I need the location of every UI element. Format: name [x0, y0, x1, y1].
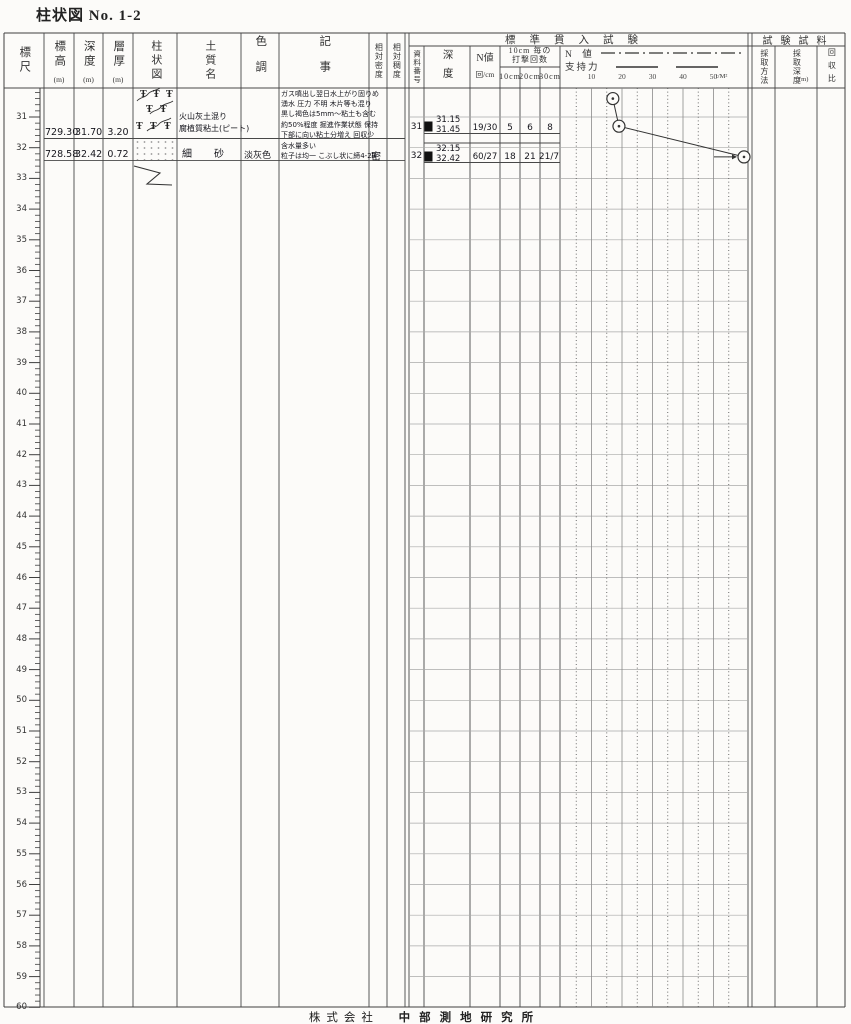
ruler-metre-label: 36: [9, 266, 27, 276]
ruler-metre-label: 59: [9, 972, 27, 982]
sample-n-value: 19/30: [470, 123, 500, 133]
n-value-point: [607, 93, 619, 105]
peat-symbol: Ŧ: [164, 121, 171, 132]
legend-lines: [601, 53, 742, 67]
header-depth: 深度 (m): [74, 33, 103, 88]
axis-tick-label: 20: [614, 72, 630, 81]
ruler-metre-label: 35: [9, 235, 27, 245]
sample-top-depth: 31.15: [436, 115, 460, 125]
borehole-log-sheet: 柱状図 No. 1-2: [0, 0, 851, 1024]
header-sampling-depth: 採取深度: [775, 46, 817, 88]
ruler-metre-label: 47: [9, 603, 27, 613]
relative-density-layer2: 密: [371, 148, 381, 163]
soil-name-layer1: 火山灰土混り 腐植質粘土(ピート): [179, 111, 249, 135]
peat-symbol: Ŧ: [150, 121, 157, 132]
header-blows-30cm: 30cm: [540, 67, 560, 88]
header-sample-no: 資料番号: [409, 46, 424, 88]
blows-20: 6: [520, 123, 540, 133]
legend-bearing-label: 支持力: [565, 59, 600, 73]
color-tone-layer2: 淡灰色: [244, 148, 271, 161]
thickness-value: 0.72: [104, 149, 132, 160]
ruler-metre-label: 45: [9, 542, 27, 552]
header-recovery-ratio: 回収比: [817, 46, 845, 88]
header-soil-name: 土質名: [177, 33, 241, 88]
ruler-metre-label: 39: [9, 358, 27, 368]
ruler-metre-label: 57: [9, 910, 27, 920]
n-value-point: [738, 151, 750, 163]
blows-10: 5: [500, 123, 520, 133]
outer-border: [4, 33, 845, 1007]
header-blows-10cm: 10cm: [500, 67, 520, 88]
blows-30: 21/7: [538, 152, 560, 162]
axis-tick-label: 50: [706, 72, 722, 81]
sand-pattern: [134, 139, 177, 160]
sample-n-value: 60/27: [470, 152, 500, 162]
axis-tick-label: 10: [584, 72, 600, 81]
page-title: 柱状図 No. 1-2: [36, 4, 142, 25]
header-blows-20cm: 20cm: [520, 67, 540, 88]
ruler-metre-label: 44: [9, 511, 27, 521]
header-sampling-depth-unit: (m): [799, 76, 808, 83]
header-relative-density: 相対密度: [369, 33, 387, 88]
blows-30: 8: [540, 123, 560, 133]
ruler-metre-label: 53: [9, 787, 27, 797]
header-color-tone: 色調: [241, 33, 279, 88]
header-sampling-method: 採取方法: [752, 46, 775, 88]
remarks-layer1: ガス噴出し翌日水上がり固りめ 湧水 圧力 不明 木片等も混り 黒し褐色は5mm〜…: [281, 89, 379, 140]
header-blow-counts: 10cm 毎の 打撃回数: [500, 46, 560, 67]
header-scale: 標尺: [4, 33, 44, 88]
axis-tick-label: 30: [645, 72, 661, 81]
header-remarks: 記事: [279, 33, 369, 88]
ruler-metre-label: 50: [9, 695, 27, 705]
ruler-metre-label: 55: [9, 849, 27, 859]
ruler-metre-label: 38: [9, 327, 27, 337]
ruler-metre-label: 32: [9, 143, 27, 153]
end-of-borehole-mark: [134, 166, 172, 185]
off-scale-arrow: [732, 154, 737, 159]
peat-symbol: Ŧ: [160, 104, 167, 115]
generated-grid-and-plot: [29, 88, 750, 1007]
sample-no: 31: [409, 122, 424, 132]
peat-symbol: Ŧ: [153, 89, 160, 100]
ruler-metre-label: 34: [9, 204, 27, 214]
sample-no: 32: [409, 151, 424, 161]
header-elevation: 標高 (m): [44, 33, 74, 88]
header-spt: 標準貫入試験: [409, 33, 748, 46]
ruler-metre-label: 33: [9, 173, 27, 183]
ruler-metre-label: 58: [9, 941, 27, 951]
elevation-value: 728.58: [45, 149, 73, 160]
axis-tick-label: 40: [675, 72, 691, 81]
peat-symbol: Ŧ: [136, 121, 143, 132]
ruler-metre-label: 42: [9, 450, 27, 460]
ruler-metre-label: 48: [9, 634, 27, 644]
sample-top-depth: 32.15: [436, 144, 460, 154]
ruler-metre-label: 37: [9, 296, 27, 306]
sample-interval-markers: [425, 122, 433, 162]
header-test-sample: 試験試料: [752, 33, 845, 46]
depth-value: 32.42: [75, 149, 102, 160]
ruler-metre-label: 54: [9, 818, 27, 828]
blows-20: 21: [520, 152, 540, 162]
ruler-metre-label: 56: [9, 880, 27, 890]
depth-value: 31.70: [75, 127, 102, 138]
header-n-value: N値 回/cm: [470, 46, 500, 88]
soil-name-layer2: 細 砂: [182, 145, 230, 160]
legend-n-label: N 値: [565, 46, 596, 60]
peat-symbol: Ŧ: [166, 89, 173, 100]
peat-symbol: Ŧ: [146, 104, 153, 115]
elevation-value: 729.30: [45, 127, 73, 138]
ruler-metre-label: 31: [9, 112, 27, 122]
header-relative-consistency: 相対稠度: [387, 33, 405, 88]
thickness-value: 3.20: [104, 127, 132, 138]
footer-company-line: 株式会社 中部測地研究所: [0, 1009, 851, 1024]
peat-symbol: Ŧ: [140, 89, 147, 100]
ruler-metre-label: 51: [9, 726, 27, 736]
ruler-metre-label: 41: [9, 419, 27, 429]
header-spt-depth: 深度: [424, 46, 470, 88]
column-lines: [44, 33, 817, 1007]
ruler-metre-label: 43: [9, 480, 27, 490]
remarks-layer2: 含水量多い 粒子は均一 こぶし状に締4-2B: [281, 142, 376, 161]
sample-bottom-depth: 31.45: [436, 125, 460, 135]
ruler-metre-label: 46: [9, 573, 27, 583]
ruler-metre-label: 52: [9, 757, 27, 767]
ruler-metre-label: 49: [9, 665, 27, 675]
sample-bottom-depth: 32.42: [436, 154, 460, 164]
header-column-figure: 柱状図: [133, 33, 177, 88]
header-thickness: 層厚 (m): [103, 33, 133, 88]
ruler-metre-label: 40: [9, 388, 27, 398]
footer-company: 株式会社: [309, 1012, 379, 1024]
n-value-point: [613, 120, 625, 132]
footer-name: 中部測地研究所: [399, 1012, 543, 1024]
blows-10: 18: [500, 152, 520, 162]
